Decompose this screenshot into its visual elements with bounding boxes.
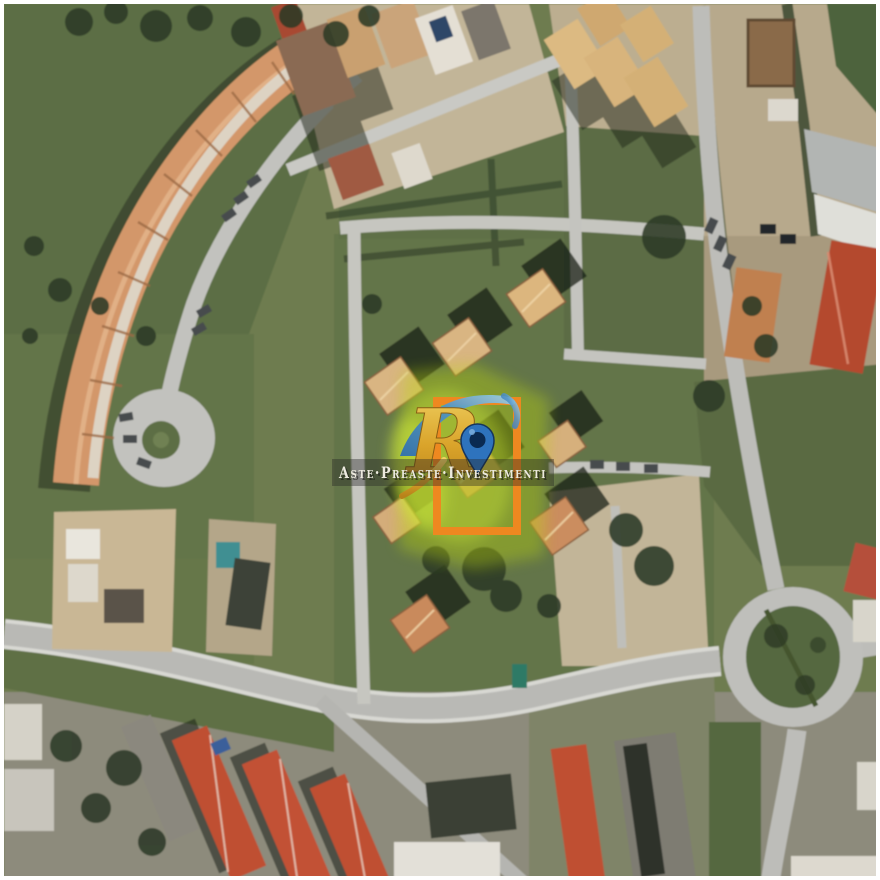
satellite-image-frame: R Aste·Preaste·Investimenti Aste·Preaste…	[0, 0, 880, 880]
satellite-map: R Aste·Preaste·Investimenti Aste·Preaste…	[4, 4, 880, 880]
waste-bin	[512, 664, 527, 688]
watermark-text: Aste·Preaste·Investimenti	[338, 463, 547, 482]
roundabout	[723, 587, 863, 727]
